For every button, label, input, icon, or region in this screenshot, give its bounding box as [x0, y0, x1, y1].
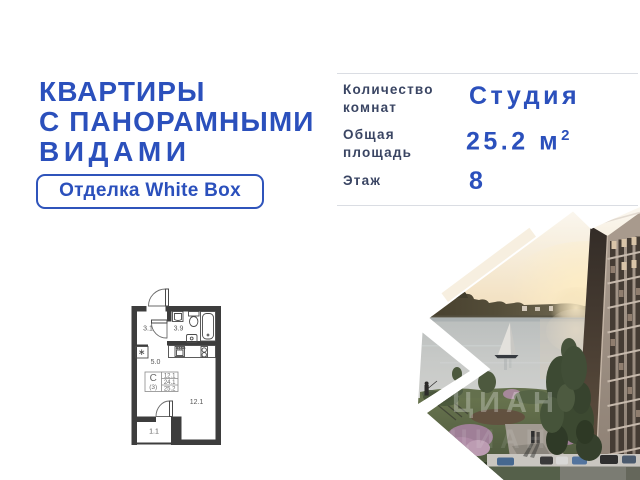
svg-text:3.1: 3.1	[143, 326, 153, 333]
svg-text:5.0: 5.0	[151, 359, 161, 366]
svg-text:12.1: 12.1	[164, 374, 176, 380]
svg-text:12.1: 12.1	[190, 399, 204, 406]
svg-text:ЦИАН: ЦИАН	[449, 424, 551, 454]
svg-text:24.1: 24.1	[164, 380, 176, 386]
svg-text:1.1: 1.1	[149, 429, 159, 436]
svg-text:3.9: 3.9	[174, 326, 184, 333]
svg-text:ЦИАН: ЦИАН	[452, 387, 560, 419]
svg-text:С: С	[150, 373, 157, 384]
svg-text:25.2: 25.2	[164, 387, 176, 393]
svg-text:(3): (3)	[149, 384, 157, 391]
